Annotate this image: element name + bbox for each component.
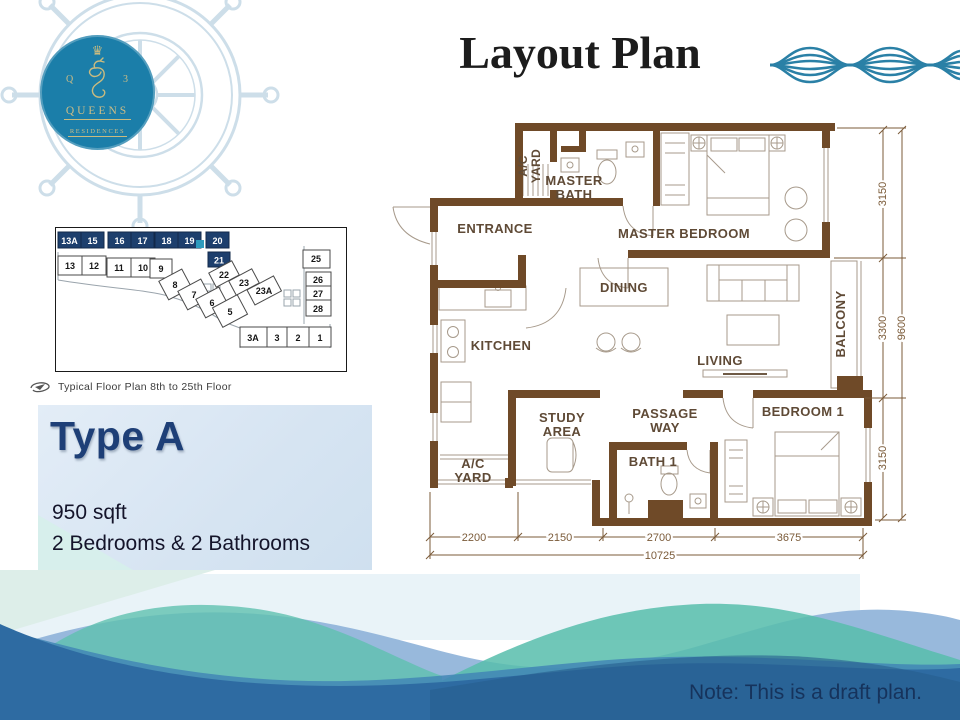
room-label-ac-bottom-1: A/C [461,456,485,471]
room-label-bedroom1: BEDROOM 1 [762,404,844,419]
room-label-ac-top-1: A/C [516,155,530,177]
room-label-dining: DINING [600,280,648,295]
dim-2700: 2700 [647,532,671,544]
svg-text:3: 3 [274,333,279,343]
svg-text:27: 27 [313,289,323,299]
dim-9600-total: 9600 [896,316,908,340]
monogram-3: 3 [123,74,128,85]
dim-3150-bottom: 3150 [877,446,889,470]
svg-text:13: 13 [65,261,75,271]
svg-text:25: 25 [311,254,321,264]
room-label-living: LIVING [697,353,743,368]
seahorse-icon [78,57,118,101]
monogram-q: Q [66,74,73,85]
room-label-ac-bottom-2: YARD [454,470,491,485]
room-label-study-2: AREA [543,424,582,439]
site-plan: 13A 15 16 17 18 19 20 21 13 12 11 10 9 8… [55,227,347,372]
svg-text:26: 26 [313,275,323,285]
svg-text:28: 28 [313,304,323,314]
svg-text:12: 12 [89,261,99,271]
compass-icon [28,378,52,396]
svg-text:3A: 3A [247,333,259,343]
svg-text:6: 6 [209,298,214,308]
dim-10725-total: 10725 [645,550,676,562]
slide: { "header": { "title": "Layout Plan" }, … [0,0,960,720]
room-label-study-1: STUDY [539,410,585,425]
room-label-ac-top-2: YARD [529,149,543,183]
unit-info-panel: Type A 950 sqft 2 Bedrooms & 2 Bathrooms [38,405,372,570]
page-title: Layout Plan [380,26,780,79]
unit-16: 16 [114,236,124,246]
unit-18: 18 [161,236,171,246]
svg-text:5: 5 [227,307,232,317]
svg-text:11: 11 [114,263,124,273]
room-label-bath1: BATH 1 [629,454,677,469]
brand-logo: ♛ Q 3 QUEENS RESIDENCES [40,35,155,150]
svg-text:2: 2 [295,333,300,343]
svg-text:23A: 23A [256,286,273,296]
dim-3150-top: 3150 [877,182,889,206]
room-label-passage-1: PASSAGE [632,406,697,421]
brand-name: QUEENS [64,105,131,120]
room-label-master-bath-2: BATH [556,187,593,202]
brand-subtitle: RESIDENCES [68,128,127,137]
svg-text:22: 22 [219,270,229,280]
svg-text:23: 23 [239,278,249,288]
unit-21: 21 [214,256,224,266]
crown-icon: ♛ [40,44,155,57]
svg-text:7: 7 [191,290,196,300]
unit-17: 17 [137,236,147,246]
unit-13A: 13A [61,236,78,246]
unit-type-title: Type A [50,413,185,460]
wave-ornament-icon [770,40,960,90]
unit-19: 19 [184,236,194,246]
unit-area: 950 sqft [52,501,127,525]
dim-3300: 3300 [877,316,889,340]
dim-3675: 3675 [777,532,801,544]
svg-text:9: 9 [158,264,163,274]
unit-20: 20 [212,236,222,246]
svg-text:8: 8 [172,280,177,290]
svg-text:1: 1 [317,333,322,343]
room-label-kitchen: KITCHEN [471,338,532,353]
room-label-passage-2: WAY [650,420,680,435]
room-label-master-bath-1: MASTER [545,173,603,188]
room-label-balcony: BALCONY [833,290,848,357]
unit-config: 2 Bedrooms & 2 Bathrooms [52,532,310,556]
room-label-master-bedroom: MASTER BEDROOM [618,226,750,241]
dim-2200: 2200 [462,532,486,544]
site-plan-drawing: 13A 15 16 17 18 19 20 21 13 12 11 10 9 8… [56,228,345,370]
site-plan-caption: Typical Floor Plan 8th to 25th Floor [58,381,232,393]
floor-plan: A/C YARD MASTER BATH MASTER BEDROOM ENTR… [385,110,960,575]
svg-text:10: 10 [138,263,148,273]
unit-15: 15 [87,236,97,246]
site-plan-marker [196,240,204,248]
room-label-entrance: ENTRANCE [457,221,532,236]
note-text: Note: This is a draft plan. [689,681,922,705]
dim-2150: 2150 [548,532,572,544]
seahorse-monogram: Q 3 [40,57,155,101]
